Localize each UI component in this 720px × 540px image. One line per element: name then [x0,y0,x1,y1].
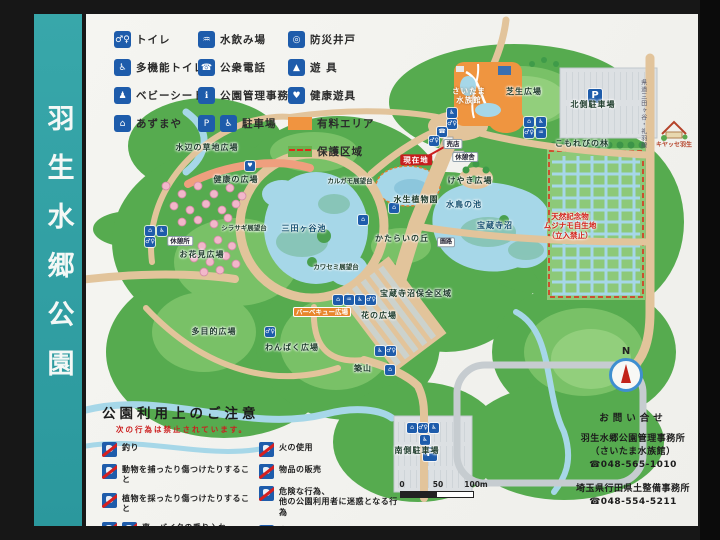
contact-office-name: 羽生水郷公園管理事務所 [563,433,698,446]
map-label: 多目的広場 [192,327,237,337]
map-label: 天然記念物 ムジナモ自生地 （立入禁止） [544,212,597,240]
legend-label: 防災井戸 [310,32,356,47]
gazebo-icon: ⌂ [114,115,131,132]
map-label: カルガモ展望台 [327,177,372,185]
map-label: 築山 [354,364,372,374]
baby-seat-icon: ♟ [114,87,131,104]
prohibition-icon [259,442,274,457]
prohibition-icon [259,525,274,526]
park-name-vertical: 羽生水郷公園 [45,104,72,526]
accessible-parking-icon: ♿ [220,115,237,132]
signboard-photo: 羽生水郷公園 [0,0,720,540]
legend-area-swatches: 有料エリア 保護区域 [288,114,375,161]
map-label: 花の広場 [361,311,397,321]
legend-item: ☎ 公衆電話 [198,58,301,77]
notices-column-2: 火の使用 物品の販売 危険な行為、 他の公園利用者に迷惑となる行為 [259,442,404,526]
contact-block: 埼玉県行田県土整備事務所 ☎048-554-5211 [563,483,698,509]
drinking-fountain-icon: ♒ [198,31,215,48]
legend-item: ♟ ベビーシート [114,86,205,105]
legend-item: ♒ 水飲み場 [198,30,301,49]
no-catching-animals-rule: 動物を捕ったり傷つけたりすること [102,464,253,486]
prohibition-icon-2 [122,522,137,526]
area-swatch [288,146,312,157]
map-label: 宝蔵寺沼 [477,221,513,231]
toilet-icon: ♂♀ [114,31,131,48]
prohibition-icon [102,493,117,508]
legend-label: 水飲み場 [220,32,266,47]
prohibition-icon [102,442,117,457]
no-dangerous-acts-rule: 危険な行為、 他の公園利用者に迷惑となる行為 [259,486,404,518]
phone-number: ☎048-554-5211 [563,496,698,509]
map-label: さいたま 水族館 [452,87,486,106]
disaster-well-icon: ◎ [288,31,305,48]
no-picking-plants-rule: 植物を採ったり傷つけたりすること [102,493,253,515]
map-label: 売店 [444,139,463,149]
contact-office-name: 埼玉県行田県土整備事務所 [563,483,698,496]
usage-notices: 公園利用上のご注意 次の行為は禁止されています。 釣り [102,402,404,526]
legend-label: トイレ [136,32,171,47]
map-label: こもれびの林 [555,139,609,149]
prohibition-icon [102,522,117,526]
accessible-toilet-icon: ♿ [114,59,131,76]
map-label: 宝蔵寺沼保全区域 [380,289,452,299]
map-label: 休憩舎 [452,152,478,162]
map-label: バーベキュー広場 [293,307,351,317]
scale-bar: 0 50 100m [400,480,510,498]
map-label: 水辺の草地広場 [176,143,239,153]
parking-icon: P [198,115,215,132]
legend-item: ♥ 健康遊具 [288,86,356,105]
area-swatch [288,117,312,130]
map-label: シラサギ展望台 [221,224,267,232]
map-label: 休憩所 [167,236,193,246]
map-label: 三田ヶ谷池 [282,224,327,234]
contact-blocks: 羽生水郷公園管理事務所 （さいたま水族館） ☎048-565-1010 埼玉県行… [563,433,698,509]
legend-column-3: ◎ 防災井戸 ▲ 遊 具 ♥ 健康遊具 [288,30,356,105]
prohibition-text: 火の使用 [279,443,313,453]
contact-info: お問い合せ 羽生水郷公園管理事務所 （さいたま水族館） ☎048-565-101… [563,410,698,520]
map-label: カワセミ展望台 [313,263,359,271]
legend-item: ♂♀ トイレ [114,30,205,49]
map-label: けやき広場 [448,176,493,186]
scale-tick-50: 50 [433,480,443,489]
prohibition-text: 危険な行為、 他の公園利用者に迷惑となる行為 [279,487,404,518]
park-title-bar: 羽生水郷公園 [34,14,82,526]
legend-label: 公衆電話 [220,60,266,75]
dog-rules: 犬はリードでつないでください 犬のふんは持ち帰りましょう [259,525,404,526]
contact-office-sub: （さいたま水族館） [563,446,698,459]
notices-title: 公園利用上のご注意 [102,402,404,422]
map-label: 北側駐車場 [571,100,616,110]
legend-label: 多機能トイレ [136,60,205,75]
playground-icon: ▲ [288,59,305,76]
legend-item: ♿ 多機能トイレ [114,58,205,77]
legend-item: ◎ 防災井戸 [288,30,356,49]
map-label: 芝生広場 [506,87,542,97]
prohibition-icon [259,464,274,479]
no-fire-rule: 火の使用 [259,442,404,457]
map-label: わんぱく広場 [265,343,319,353]
prohibition-text: 動物を捕ったり傷つけたりすること [122,465,253,486]
compass-north-label: N [608,346,644,357]
prohibition-text: 釣り [122,443,139,453]
map-label: 健康の広場 [214,175,259,185]
map-label: お花見広場 [180,250,225,260]
map-label: かたらいの丘 [375,234,429,244]
no-selling-rule: 物品の販売 [259,464,404,479]
legend-area-item: 保護区域 [288,142,375,161]
public-phone-icon: ☎ [198,59,215,76]
legend-label: 健康遊具 [310,88,356,103]
prohibition-icon [102,464,117,479]
phone-number: ☎048-565-1010 [563,459,698,472]
contact-title: お問い合せ [563,410,698,424]
map-label: キヤッセ羽生 [656,141,692,149]
map-label: 県道三田ヶ谷・礼羽線 [639,79,647,149]
prohibition-icon [259,486,274,501]
health-equipment-icon: ♥ [288,87,305,104]
legend-label: あずまや [136,116,182,131]
contact-block: 羽生水郷公園管理事務所 （さいたま水族館） ☎048-565-1010 [563,433,698,472]
photo-frame-edge [700,0,720,540]
legend-item: P ♿ 駐車場 [198,114,301,133]
legend-label: 保護区域 [317,144,363,159]
legend-label: 有料エリア [317,116,375,131]
prohibition-text: 物品の販売 [279,465,322,475]
notices-subtitle: 次の行為は禁止されています。 [116,424,404,435]
scale-tick-100m: 100m [464,480,487,489]
no-vehicles-rule: 車、バイクの乗り入れ [102,522,253,526]
map-label: 水生植物園 [394,195,439,205]
legend-column-2: ♒ 水飲み場 ☎ 公衆電話 ℹ 公園管理事務所 P [198,30,301,133]
legend-item: ▲ 遊 具 [288,58,356,77]
notices-column-1: 釣り 動物を捕ったり傷つけたりすること 植物を採ったり傷つけたりすること [102,442,253,526]
legend-label: 駐車場 [242,116,277,131]
map-label: 現在地 [400,154,432,165]
legend-label: ベビーシート [136,88,205,103]
map-board: ♂♀ トイレ ♿ 多機能トイレ ♟ ベビーシート ⌂ [86,14,698,526]
compass: N [608,346,644,392]
legend-item: ℹ 公園管理事務所 [198,86,301,105]
legend-label: 遊 具 [310,60,338,75]
no-fishing-rule: 釣り [102,442,253,457]
map-label: 園路 [437,237,455,247]
park-office-icon: ℹ [198,87,215,104]
prohibition-text: 植物を採ったり傷つけたりすること [122,494,253,515]
prohibition-text: 車、バイクの乗り入れ [142,523,227,526]
legend-column-1: ♂♀ トイレ ♿ 多機能トイレ ♟ ベビーシート ⌂ [114,30,205,133]
legend-area-item: 有料エリア [288,114,375,133]
map-label: 水鳥の池 [446,200,482,210]
legend-item: ⌂ あずまや [114,114,205,133]
compass-icon [609,358,643,392]
